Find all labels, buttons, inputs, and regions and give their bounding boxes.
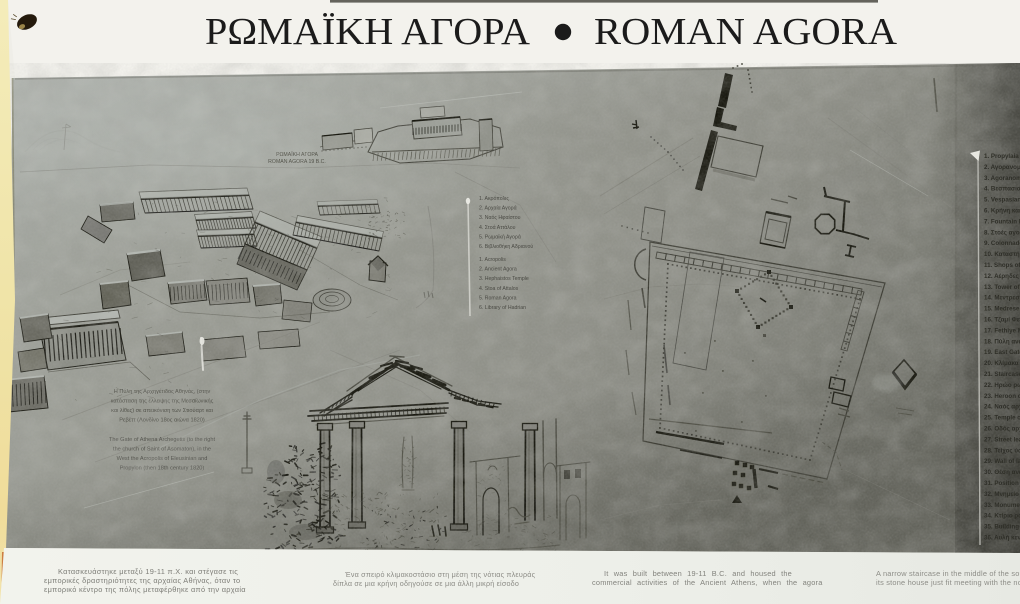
svg-text:24. Ναός αρχαίος στ: 24. Ναός αρχαίος στ xyxy=(984,404,1020,411)
svg-text:9. Colonnades and: 9. Colonnades and xyxy=(984,240,1020,247)
svg-text:its stone house just fit meeti: its stone house just fit meeting with th… xyxy=(876,578,1020,587)
svg-text:25. Temple of the a: 25. Temple of the a xyxy=(984,415,1020,422)
svg-text:22. Ηρώο ρωμαϊκό κ: 22. Ηρώο ρωμαϊκό κ xyxy=(984,382,1020,389)
svg-text:16. Τζαμί Φετιχιέ τ: 16. Τζαμί Φετιχιέ τ xyxy=(984,317,1020,324)
svg-text:1. Propylaia bor: 1. Propylaia bor xyxy=(984,153,1020,160)
svg-text:14. Μεντρεσές οθωμ: 14. Μεντρεσές οθωμ xyxy=(984,295,1020,302)
svg-text:2. Αρχαία Αγορά: 2. Αρχαία Αγορά xyxy=(479,205,517,212)
svg-text:19. East Gateway o: 19. East Gateway o xyxy=(984,349,1020,356)
svg-text:6. Library of Hadrian: 6. Library of Hadrian xyxy=(479,305,526,311)
svg-text:34. Κτίριο ρωμαϊκό: 34. Κτίριο ρωμαϊκό xyxy=(984,513,1020,520)
svg-text:2. Ancient Agora: 2. Ancient Agora xyxy=(479,267,517,273)
svg-text:4. Στοά Αττάλου: 4. Στοά Αττάλου xyxy=(479,224,516,231)
svg-text:6. Βιβλιοθήκη Αδριανού: 6. Βιβλιοθήκη Αδριανού xyxy=(479,243,533,250)
svg-text:17. Fethiye Mosque: 17. Fethiye Mosque xyxy=(984,327,1020,334)
svg-text:It was built between 19-11 B.C: It was built between 19-11 B.C. and hous… xyxy=(604,569,792,578)
svg-text:6. Κρήνη και στοά: 6. Κρήνη και στοά xyxy=(984,208,1020,215)
svg-text:15. Medrese of the: 15. Medrese of the xyxy=(984,306,1020,313)
svg-text:18. Πύλη ανατολική: 18. Πύλη ανατολική xyxy=(984,338,1020,345)
svg-text:4. Stoa of Attalos: 4. Stoa of Attalos xyxy=(479,286,519,292)
svg-text:4. Βεσπασιανές χτ: 4. Βεσπασιανές χτ xyxy=(984,186,1020,193)
svg-text:5. Ρωμαϊκή Αγορά: 5. Ρωμαϊκή Αγορά xyxy=(479,233,521,240)
svg-text:30. Θέση ανασκαφής: 30. Θέση ανασκαφής xyxy=(984,469,1020,476)
svg-text:23. Heroon of the a: 23. Heroon of the a xyxy=(984,393,1020,400)
svg-text:εμπορικό κέντρο της πόλης μετα: εμπορικό κέντρο της πόλης μεταφέρθηκε απ… xyxy=(44,585,246,594)
svg-text:21. Staircase of so: 21. Staircase of so xyxy=(984,371,1020,378)
svg-text:ΡΩΜΑΪΚΗ ΑΓΟΡΑ: ΡΩΜΑΪΚΗ ΑΓΟΡΑ xyxy=(205,11,531,53)
svg-text:3. Ναός Ηφαίστου: 3. Ναός Ηφαίστου xyxy=(479,214,521,221)
svg-text:7. Fountain house: 7. Fountain house xyxy=(984,218,1020,225)
svg-text:1. Acropolis: 1. Acropolis xyxy=(479,257,506,263)
svg-text:31. Position of exc: 31. Position of exc xyxy=(984,480,1020,487)
svg-text:32. Μνημείο ταφικό: 32. Μνημείο ταφικό xyxy=(984,491,1020,498)
svg-text:1. Ακρόπολις: 1. Ακρόπολις xyxy=(479,195,509,202)
svg-text:commercial activities of the A: commercial activities of the Ancient Ath… xyxy=(592,578,823,587)
svg-text:26. Οδός αρχαία προ: 26. Οδός αρχαία προ xyxy=(984,426,1020,433)
svg-text:8. Στοές αγοράς τ: 8. Στοές αγοράς τ xyxy=(984,229,1020,236)
svg-text:A narrow staircase in the midd: A narrow staircase in the middle of the … xyxy=(876,569,1020,578)
svg-text:5. Roman Agora: 5. Roman Agora xyxy=(479,295,517,301)
svg-text:Ένα σπειρό κλιμακοστάσιο στη μ: Ένα σπειρό κλιμακοστάσιο στη μέση της νό… xyxy=(344,570,536,579)
svg-text:13. Tower of Winds: 13. Tower of Winds xyxy=(984,284,1020,291)
svg-text:35. Building of the: 35. Building of the xyxy=(984,524,1020,531)
svg-text:3. Agoranomeion s: 3. Agoranomeion s xyxy=(984,175,1020,182)
svg-text:εμπορικές δραστηριότητες της α: εμπορικές δραστηριότητες της αρχαίας Αθή… xyxy=(44,576,240,585)
svg-text:12. Αέρηδες ρολόι τ: 12. Αέρηδες ρολόι τ xyxy=(984,273,1020,280)
svg-text:ROMAN AGORA: ROMAN AGORA xyxy=(594,11,898,53)
svg-text:36. Αυλή κεντρική π: 36. Αυλή κεντρική π xyxy=(984,535,1020,542)
svg-text:11. Shops of the ma: 11. Shops of the ma xyxy=(984,262,1020,269)
svg-text:29. Wall of late ro: 29. Wall of late ro xyxy=(984,458,1020,465)
svg-text:δίπλα σε μια κρήνη οδηγούσε σε: δίπλα σε μια κρήνη οδηγούσε σε μια άλλη … xyxy=(333,579,519,588)
svg-text:28. Τείχος ύστερορω: 28. Τείχος ύστερορω xyxy=(984,447,1020,454)
svg-text:20. Κλίμακα νότια π: 20. Κλίμακα νότια π xyxy=(984,360,1020,367)
svg-text:27. Street leading: 27. Street leading xyxy=(984,436,1020,443)
svg-text:Κατασκευάστηκε μεταξύ 19-11 π.: Κατασκευάστηκε μεταξύ 19-11 π.Χ. και στέ… xyxy=(58,567,238,576)
svg-text:2. Αγορανομείον κ: 2. Αγορανομείον κ xyxy=(984,164,1020,171)
svg-text:3. Hephaistos Temple: 3. Hephaistos Temple xyxy=(479,276,529,282)
svg-text:10. Καταστήματα εμ: 10. Καταστήματα εμ xyxy=(984,251,1020,258)
svg-text:5. Vespasianae fo: 5. Vespasianae fo xyxy=(984,197,1020,204)
svg-text:33. Monument of the: 33. Monument of the xyxy=(984,502,1020,509)
